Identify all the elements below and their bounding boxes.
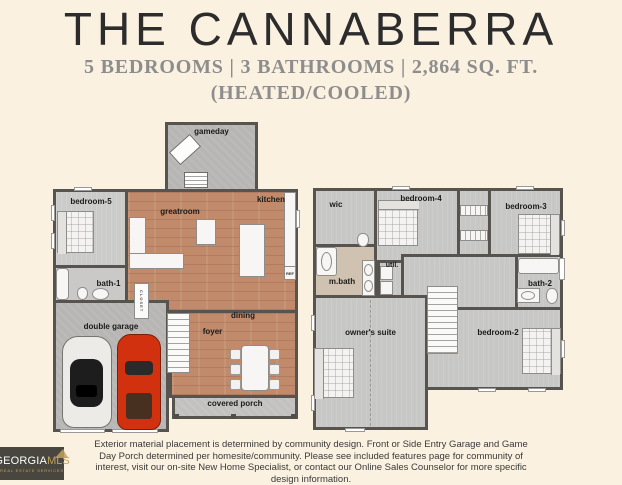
floorplan-flyer: THE CANNABERRA 5 BEDROOMS | 3 BATHROOMS … (0, 0, 622, 480)
bed-bedroom4 (378, 200, 418, 246)
room-hall-closets (457, 188, 491, 263)
room-label-dining: dining (221, 311, 265, 320)
window (51, 205, 55, 221)
room-label-double-garage: double garage (63, 322, 159, 331)
hall-closet-shelf (460, 205, 488, 216)
logo-tagline: REAL ESTATE SERVICES (0, 468, 64, 473)
toilet-mbath (357, 233, 369, 247)
window (478, 388, 496, 392)
window (561, 220, 565, 236)
bathtub-bath1 (56, 268, 69, 300)
room-label-bath2: bath-2 (519, 279, 561, 288)
sofa-section (129, 253, 184, 269)
window (528, 388, 546, 392)
red-car (117, 334, 161, 430)
bed-owners-suite (314, 348, 354, 398)
toilet-bath2 (546, 288, 558, 304)
room-label-wic: wic (316, 200, 356, 209)
hall-closet-shelf (460, 230, 488, 241)
ottoman (196, 219, 216, 245)
ref-label: REF (286, 271, 294, 276)
porch-post (174, 414, 179, 419)
stairs-second-floor (427, 286, 458, 354)
dining-chair (230, 364, 241, 375)
dryer (380, 281, 393, 295)
dining-chair (230, 349, 241, 360)
logo-text-mls: MLS (47, 455, 70, 467)
dining-chair (269, 364, 280, 375)
room-label-foyer: foyer (190, 327, 235, 336)
room-label-mbath: m.bath (318, 277, 366, 286)
room-label-greatroom: greatroom (144, 207, 216, 216)
gameday-steps (184, 172, 208, 188)
room-label-util: util. (380, 262, 404, 269)
sink-mbath (364, 264, 373, 276)
toilet-bath1 (77, 287, 88, 300)
garage-door (60, 429, 105, 433)
sink-bath1 (92, 288, 109, 300)
window (311, 315, 315, 331)
dining-chair (230, 379, 241, 390)
window (392, 186, 410, 190)
window (74, 187, 92, 191)
room-label-bedroom2: bedroom-2 (458, 328, 538, 337)
porch-post (291, 414, 296, 419)
closet-label: CLOSET (139, 290, 144, 312)
room-label-bath1: bath-1 (86, 279, 131, 288)
dining-chair (269, 349, 280, 360)
tub-bath2 (518, 258, 559, 274)
kitchen-island (239, 224, 265, 277)
window (51, 233, 55, 249)
sink-basin-bath2 (521, 291, 535, 300)
room-label-bedroom4: bedroom-4 (385, 194, 457, 203)
window (345, 428, 365, 432)
logo-text-georgia: GEORGIA (0, 455, 47, 467)
white-car (62, 336, 112, 428)
room-label-covered-porch: covered porch (180, 399, 290, 408)
disclaimer-text: Exterior material placement is determine… (86, 439, 536, 485)
dining-table (241, 345, 269, 391)
room-label-gameday: gameday (165, 127, 258, 136)
closet-under-stairs: CLOSET (134, 283, 149, 319)
window (559, 258, 565, 280)
heated-cooled-line: (HEATED/COOLED) (0, 82, 622, 105)
ceiling-break-line (370, 300, 371, 426)
room-label-kitchen: kitchen (248, 195, 294, 204)
room-label-bedroom3: bedroom-3 (494, 202, 558, 211)
sofa-section (129, 217, 146, 257)
porch-post (231, 414, 236, 419)
window (561, 340, 565, 358)
bed-bedroom5 (57, 211, 94, 253)
refrigerator: REF (284, 266, 296, 280)
georgia-mls-logo: GEORGIAMLS REAL ESTATE SERVICES (0, 447, 64, 480)
stairs-first-floor (167, 313, 190, 373)
room-label-owners-suite: owner's suite (328, 328, 413, 337)
dining-chair (269, 379, 280, 390)
page-title: THE CANNABERRA (0, 2, 622, 56)
bed-bedroom3 (518, 214, 560, 254)
window (296, 210, 300, 228)
specs-line: 5 BEDROOMS | 3 BATHROOMS | 2,864 SQ. FT. (0, 56, 622, 79)
room-label-bedroom5: bedroom-5 (56, 197, 126, 206)
window (516, 186, 534, 190)
tub-basin-mbath (321, 252, 332, 271)
